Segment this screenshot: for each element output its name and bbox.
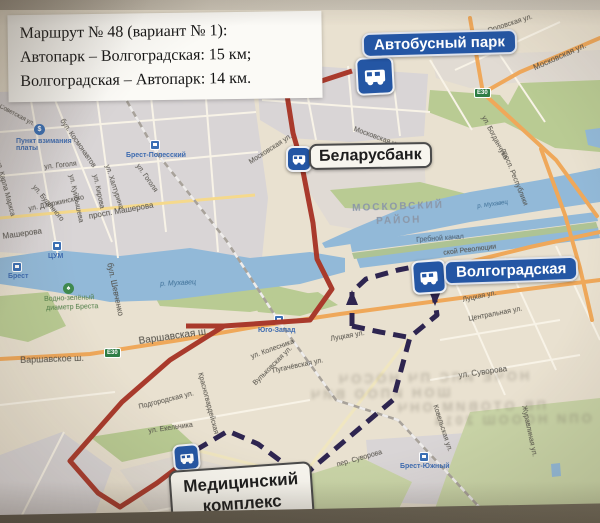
stop-label-volgogradskaya-text: Волгоградская <box>456 260 567 281</box>
bus-icon <box>180 453 194 462</box>
route-outbound-solid <box>70 71 352 507</box>
bus-icon <box>293 155 305 162</box>
bus-icon <box>365 69 386 82</box>
route-direction-arrow-up <box>346 290 358 305</box>
bus-stop-icon-autopark <box>355 56 395 96</box>
bus-stop-icon-medical <box>172 443 201 472</box>
route-info-box: Маршрут № 48 (вариант № 1): Автопарк – В… <box>7 11 322 102</box>
stop-label-bank: Беларусбанк <box>309 142 432 170</box>
route-return-connector <box>352 326 407 337</box>
bus-stop-icon-volgogradskaya <box>411 259 447 295</box>
route-info-line3: Волгоградская – Автопарк: 14 км. <box>20 66 312 94</box>
stop-label-autopark: Автобусный парк <box>362 29 517 58</box>
stop-label-volgogradskaya: Волгоградская <box>444 256 579 286</box>
route-return-dashed <box>196 272 437 477</box>
stop-label-autopark-text: Автобусный парк <box>374 33 505 53</box>
route-map-photo: Орловская ул.Московская ул.Московская ул… <box>0 0 600 523</box>
stop-label-bank-text: Беларусбанк <box>319 146 422 166</box>
route-return-branch <box>352 267 413 326</box>
bus-icon <box>420 271 438 282</box>
photo-top-edge <box>0 0 600 10</box>
